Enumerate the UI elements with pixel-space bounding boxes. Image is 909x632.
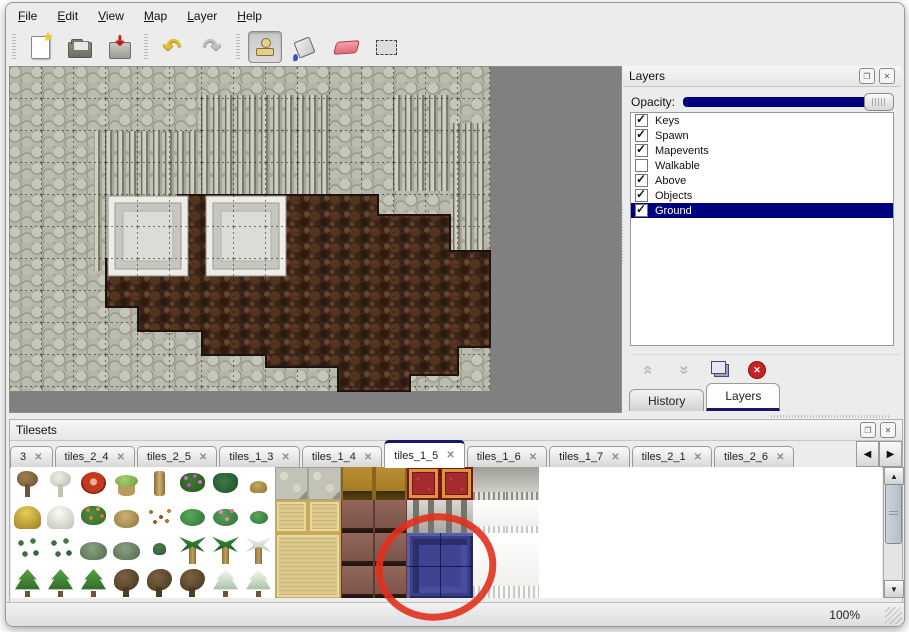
tileset-tile[interactable] xyxy=(77,467,110,500)
delete-layer-icon: ✕ xyxy=(748,361,766,379)
scroll-down-icon[interactable]: ▼ xyxy=(884,580,904,598)
scroll-up-icon[interactable]: ▲ xyxy=(884,467,904,485)
status-bar: 100% xyxy=(6,602,904,626)
tilesets-panel-header: Tilesets ❐ ✕ xyxy=(10,420,902,441)
tileset-tab-label: tiles_2_5 xyxy=(147,451,191,463)
tileset-tile[interactable] xyxy=(176,467,209,500)
tileset-tile[interactable] xyxy=(341,500,374,533)
eraser-button[interactable] xyxy=(330,32,362,62)
layer-name: Mapevents xyxy=(655,145,709,157)
tileset-tile[interactable] xyxy=(11,500,44,533)
layer-name: Above xyxy=(655,175,686,187)
tileset-tile[interactable] xyxy=(176,566,209,598)
tileset-tile[interactable] xyxy=(440,500,473,533)
tilesets-panel-title: Tilesets xyxy=(16,423,57,437)
tileset-tile[interactable] xyxy=(242,467,275,500)
tileset-tab-tiles_1_5[interactable]: tiles_1_5✕ xyxy=(384,440,464,468)
close-tab-icon[interactable]: ✕ xyxy=(364,452,372,463)
menu-layer[interactable]: Layer xyxy=(187,9,217,23)
menu-edit[interactable]: Edit xyxy=(57,9,78,23)
tileset-tab-tiles_2_4[interactable]: tiles_2_4✕ xyxy=(55,446,135,467)
tileset-tile[interactable] xyxy=(44,566,77,598)
layer-visibility-checkbox[interactable] xyxy=(635,114,648,127)
tileset-tile[interactable] xyxy=(44,500,77,533)
layer-name: Spawn xyxy=(655,130,689,142)
tileset-tab-label: 3 xyxy=(20,451,26,463)
menu-map[interactable]: Map xyxy=(144,9,167,23)
map-render xyxy=(10,67,621,412)
layer-visibility-checkbox[interactable] xyxy=(635,129,648,142)
tileset-tab-label: tiles_2_1 xyxy=(642,451,686,463)
tileset-tile[interactable] xyxy=(473,500,506,533)
new-file-icon xyxy=(31,36,50,59)
bucket-button[interactable] xyxy=(290,32,322,62)
select-button[interactable] xyxy=(370,32,402,62)
tileset-tile[interactable] xyxy=(44,467,77,500)
open-folder-icon xyxy=(68,42,92,58)
toolbar: ↶↷ xyxy=(6,28,905,66)
duplicate-layer-button[interactable] xyxy=(710,359,732,381)
raise-layer-icon: « xyxy=(639,365,659,374)
tileset-tab-label: tiles_1_7 xyxy=(559,451,603,463)
tileset-tile[interactable] xyxy=(209,500,242,533)
tileset-tile[interactable] xyxy=(341,467,374,500)
float-panel-icon[interactable]: ❐ xyxy=(859,68,875,84)
tileset-tile[interactable] xyxy=(143,500,176,533)
tileset-tab-tiles_2_6[interactable]: tiles_2_6✕ xyxy=(714,446,794,467)
selected-tile[interactable] xyxy=(407,533,473,598)
tileset-tile[interactable] xyxy=(374,533,407,566)
toolbar-handle[interactable] xyxy=(236,34,240,60)
map-canvas[interactable] xyxy=(9,66,622,413)
tileset-tile[interactable] xyxy=(473,533,539,598)
tileset-tile[interactable] xyxy=(341,533,374,566)
select-icon xyxy=(376,40,397,55)
menu-help[interactable]: Help xyxy=(237,9,262,23)
undo-button[interactable]: ↶ xyxy=(156,32,188,62)
stamp-icon xyxy=(256,38,274,56)
tileset-tile[interactable] xyxy=(209,533,242,566)
tileset-tile[interactable] xyxy=(473,467,506,500)
toolbar-handle[interactable] xyxy=(12,34,16,60)
close-panel-icon[interactable]: ✕ xyxy=(880,422,896,438)
tileset-tab-3[interactable]: 3✕ xyxy=(10,446,53,467)
tileset-tile[interactable] xyxy=(77,566,110,598)
tileset-tab-label: tiles_2_4 xyxy=(65,451,109,463)
tileset-tab-tiles_2_5[interactable]: tiles_2_5✕ xyxy=(137,446,217,467)
tileset-tile[interactable] xyxy=(110,533,143,566)
tileset-tile[interactable] xyxy=(506,500,539,533)
close-tab-icon[interactable]: ✕ xyxy=(776,452,784,463)
tileset-tile[interactable] xyxy=(242,500,275,533)
layer-visibility-checkbox[interactable] xyxy=(635,204,648,217)
tileset-tile[interactable] xyxy=(110,500,143,533)
tileset-tile[interactable] xyxy=(44,533,77,566)
layer-visibility-checkbox[interactable] xyxy=(635,189,648,202)
tileset-tile[interactable] xyxy=(209,467,242,500)
tileset-tile[interactable] xyxy=(407,467,440,500)
tileset-tab-label: tiles_1_5 xyxy=(394,450,438,462)
scroll-tabs-right-icon[interactable]: ▶ xyxy=(879,441,902,467)
tileset-tab-label: tiles_1_3 xyxy=(229,451,273,463)
tileset-tab-label: tiles_1_4 xyxy=(312,451,356,463)
layer-row[interactable]: Mapevents xyxy=(631,143,893,158)
scrollbar-thumb[interactable] xyxy=(885,484,902,544)
menu-file[interactable]: File xyxy=(18,9,37,23)
opacity-slider[interactable] xyxy=(683,97,893,107)
layer-actions: «»✕ xyxy=(630,354,900,385)
float-panel-icon[interactable]: ❐ xyxy=(860,422,876,438)
layer-name: Objects xyxy=(655,190,692,202)
tileset-tab-label: tiles_2_6 xyxy=(724,451,768,463)
resize-grip[interactable] xyxy=(885,607,902,624)
tileset-tab-tiles_1_7[interactable]: tiles_1_7✕ xyxy=(549,446,629,467)
tileset-tile[interactable] xyxy=(242,566,275,598)
save-icon xyxy=(109,42,131,59)
save-button[interactable] xyxy=(104,32,136,62)
close-tab-icon[interactable]: ✕ xyxy=(694,452,702,463)
tileset-scrollbar[interactable]: ▲ ▼ xyxy=(883,467,902,598)
opacity-slider-handle[interactable] xyxy=(864,93,894,111)
tileset-tile[interactable] xyxy=(209,566,242,598)
layers-panel-header: Layers ❐ ✕ xyxy=(623,66,901,87)
redo-icon: ↷ xyxy=(203,37,221,57)
open-folder-button[interactable] xyxy=(64,32,96,62)
tileset-tile[interactable] xyxy=(110,467,143,500)
tileset-tab-tiles_2_1[interactable]: tiles_2_1✕ xyxy=(632,446,712,467)
layer-list: KeysSpawnMapeventsWalkableAboveObjectsGr… xyxy=(630,112,894,346)
app-window: FileEditViewMapLayerHelp ↶↷ xyxy=(5,2,905,627)
bucket-icon xyxy=(293,36,315,58)
tileset-tile[interactable] xyxy=(176,533,209,566)
tileset-tile[interactable] xyxy=(308,500,341,533)
tileset-tile[interactable] xyxy=(242,533,275,566)
toolbar-handle[interactable] xyxy=(144,34,148,60)
tileset-tile[interactable] xyxy=(143,467,176,500)
tileset-tile[interactable] xyxy=(11,533,44,566)
tileset-tile[interactable] xyxy=(275,467,308,500)
close-tab-icon[interactable]: ✕ xyxy=(34,452,42,463)
close-panel-icon[interactable]: ✕ xyxy=(879,68,895,84)
layer-row[interactable]: Ground xyxy=(631,203,893,218)
duplicate-layer-icon xyxy=(714,364,729,377)
redo-button[interactable]: ↷ xyxy=(196,32,228,62)
tab-layers[interactable]: Layers xyxy=(706,383,780,411)
layers-panel: Layers ❐ ✕ Opacity: KeysSpawnMapeventsWa… xyxy=(623,66,901,411)
tileset-tabs: 3✕tiles_2_4✕tiles_2_5✕tiles_1_3✕tiles_1_… xyxy=(10,441,902,468)
tileset-tile[interactable] xyxy=(11,566,44,598)
undo-icon: ↶ xyxy=(163,37,181,57)
close-tab-icon[interactable]: ✕ xyxy=(199,452,207,463)
layers-panel-title: Layers xyxy=(629,69,665,83)
tab-history[interactable]: History xyxy=(629,389,704,411)
tileset-tab-label: tiles_1_6 xyxy=(477,451,521,463)
tileset-tile[interactable] xyxy=(77,533,110,566)
tileset-tile[interactable] xyxy=(407,500,440,533)
menu-bar: FileEditViewMapLayerHelp xyxy=(6,3,905,28)
tab-scroll-buttons: ◀▶ xyxy=(856,441,902,467)
tileset-tab-tiles_1_4[interactable]: tiles_1_4✕ xyxy=(302,446,382,467)
close-tab-icon[interactable]: ✕ xyxy=(117,452,125,463)
new-file-button[interactable] xyxy=(24,32,56,62)
tileset-tile[interactable] xyxy=(176,500,209,533)
tileset-tile[interactable] xyxy=(374,566,407,598)
scroll-tabs-left-icon[interactable]: ◀ xyxy=(856,441,879,467)
zoom-level: 100% xyxy=(829,608,860,622)
tileset-tile[interactable] xyxy=(275,533,341,598)
tileset-tile[interactable] xyxy=(308,467,341,500)
delete-layer-button[interactable]: ✕ xyxy=(746,359,768,381)
layer-row[interactable]: Spawn xyxy=(631,128,893,143)
tileset-tile[interactable] xyxy=(143,533,176,566)
lower-layer-icon: » xyxy=(675,365,695,374)
raise-layer-button: « xyxy=(638,359,660,381)
tileset-tile[interactable] xyxy=(341,566,374,598)
layer-visibility-checkbox[interactable] xyxy=(635,159,648,172)
close-tab-icon[interactable]: ✕ xyxy=(281,452,289,463)
tilesets-panel: Tilesets ❐ ✕ 3✕tiles_2_4✕tiles_2_5✕tiles… xyxy=(9,419,903,605)
opacity-label: Opacity: xyxy=(631,95,675,109)
layer-name: Ground xyxy=(655,205,692,217)
layer-row[interactable]: Keys xyxy=(631,113,893,128)
menu-view[interactable]: View xyxy=(98,9,124,23)
close-tab-icon[interactable]: ✕ xyxy=(529,452,537,463)
tileset-tile[interactable] xyxy=(110,566,143,598)
tileset-tile[interactable] xyxy=(275,500,308,533)
layer-row[interactable]: Walkable xyxy=(631,158,893,173)
tileset-canvas[interactable] xyxy=(11,467,882,598)
layer-row[interactable]: Objects xyxy=(631,188,893,203)
eraser-icon xyxy=(333,40,360,55)
layer-row[interactable]: Above xyxy=(631,173,893,188)
tileset-tile[interactable] xyxy=(374,467,407,500)
lower-layer-button: » xyxy=(674,359,696,381)
stamp-button[interactable] xyxy=(248,31,282,63)
tileset-tile[interactable] xyxy=(11,467,44,500)
side-panel-tabs: HistoryLayers xyxy=(623,385,905,411)
layer-name: Keys xyxy=(655,115,679,127)
layer-visibility-checkbox[interactable] xyxy=(635,144,648,157)
tileset-tile[interactable] xyxy=(374,500,407,533)
tileset-tab-tiles_1_3[interactable]: tiles_1_3✕ xyxy=(219,446,299,467)
layer-visibility-checkbox[interactable] xyxy=(635,174,648,187)
layer-name: Walkable xyxy=(655,160,700,172)
close-tab-icon[interactable]: ✕ xyxy=(611,452,619,463)
tileset-tile[interactable] xyxy=(506,467,539,500)
tileset-tab-tiles_1_6[interactable]: tiles_1_6✕ xyxy=(467,446,547,467)
tileset-tile[interactable] xyxy=(143,566,176,598)
tileset-tile[interactable] xyxy=(77,500,110,533)
close-tab-icon[interactable]: ✕ xyxy=(446,450,454,461)
tileset-tile[interactable] xyxy=(440,467,473,500)
